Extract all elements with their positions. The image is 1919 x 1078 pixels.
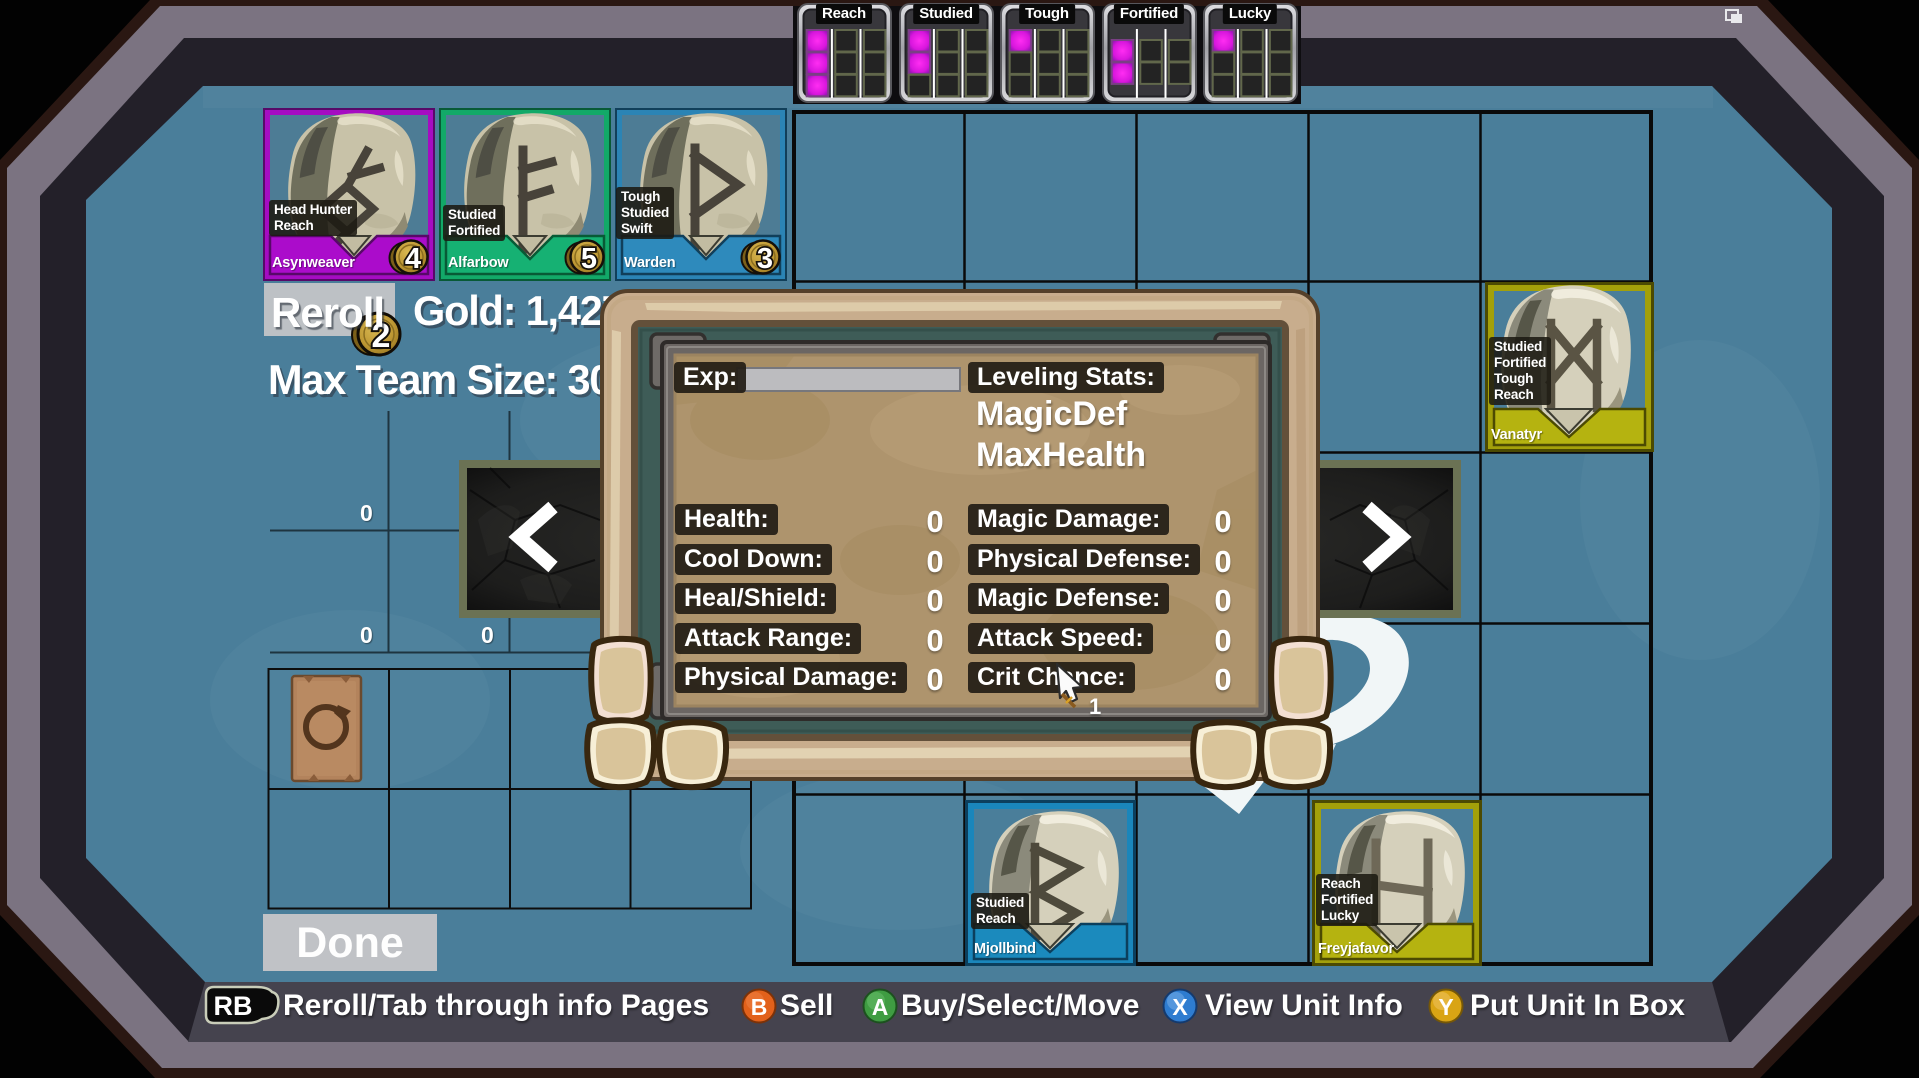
svg-text:A: A	[872, 994, 889, 1020]
svg-text:3: 3	[757, 243, 773, 275]
svg-text:RB: RB	[214, 991, 253, 1021]
svg-text:Y: Y	[1438, 994, 1453, 1020]
svg-text:B: B	[751, 994, 768, 1020]
svg-text:X: X	[1172, 994, 1188, 1020]
svg-text:4: 4	[405, 243, 421, 275]
svg-text:5: 5	[581, 243, 597, 275]
svg-text:Max Team Size: 30: Max Team Size: 30	[268, 356, 611, 403]
svg-text:Gold: 1,427: Gold: 1,427	[413, 287, 624, 334]
